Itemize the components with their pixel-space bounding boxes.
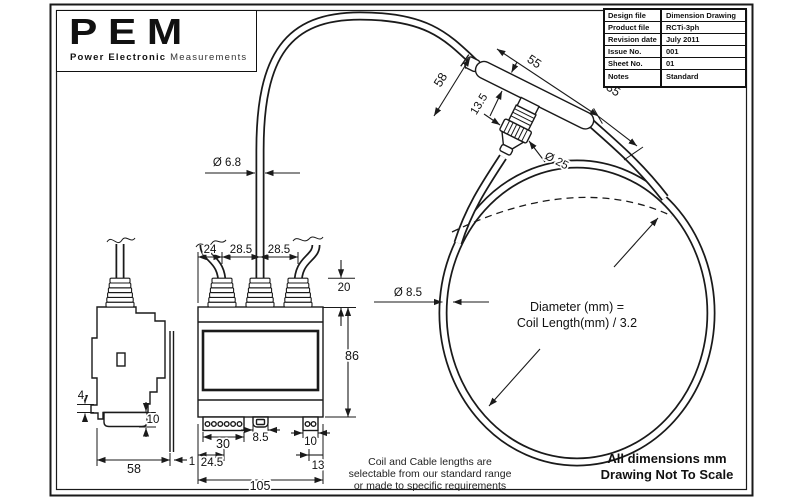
dim-terminal-offset-right: 13 (312, 460, 325, 472)
title-block-row: Notes Standard (605, 69, 745, 86)
dim-terminal-offset-left: 24.5 (201, 457, 223, 469)
dim-gland-pitch-1: 24 (204, 244, 217, 256)
coil-note: Coil and Cable lengths are selectable fr… (342, 456, 518, 492)
dim-cable-diameter: Ø 6.8 (213, 157, 241, 169)
mid-connector (253, 417, 268, 427)
dimension-drawing-page: 4 10 58 1 24 28.5 28.5 20 86 30 8.5 10 2… (0, 0, 800, 500)
dim-gland-pitch-3: 28.5 (268, 244, 290, 256)
side-foot (104, 413, 147, 427)
footer-note: All dimensions mm Drawing Not To Scale (583, 451, 751, 483)
front-gland-1 (208, 278, 236, 307)
coil-formula-line2: Coil Length(mm) / 3.2 (517, 316, 637, 330)
dim-clip-step: 4 (78, 390, 85, 402)
dim-side-depth: 58 (127, 462, 141, 476)
dim-mid-connector-width: 8.5 (253, 432, 269, 444)
dim-coil-tube-diameter: Ø 8.5 (394, 287, 422, 299)
dim-case-width: 105 (250, 479, 271, 493)
logo-box: PEM Power Electronic Measurements (56, 10, 257, 72)
dim-aux-terminal-width: 10 (304, 436, 317, 448)
side-cable-gland (106, 278, 134, 307)
pem-logo: PEM (69, 15, 290, 49)
coil-formula-line1: Diameter (mm) = (530, 300, 624, 314)
front-panel (203, 331, 318, 390)
front-gland-2 (246, 278, 274, 307)
dim-foot-height: 10 (147, 414, 160, 426)
front-gland-3 (284, 278, 312, 307)
dim-rail-gap: 1 (189, 456, 195, 468)
front-view (198, 278, 323, 430)
title-block-row: Revision date July 2011 (605, 33, 745, 45)
dim-gland-pitch-2: 28.5 (230, 244, 252, 256)
title-block: Design file Dimension Drawing Product fi… (603, 8, 747, 88)
title-block-row: Sheet No. 01 (605, 57, 745, 69)
title-block-row: Issue No. 001 (605, 45, 745, 57)
title-block-row: Product file RCTi-3ph (605, 21, 745, 33)
logo-tagline: Power Electronic Measurements (70, 52, 256, 63)
dim-gland-height: 20 (338, 282, 351, 294)
dim-case-height: 86 (345, 349, 359, 363)
dim-terminal-width: 30 (216, 437, 230, 451)
title-block-row: Design file Dimension Drawing (605, 10, 745, 21)
